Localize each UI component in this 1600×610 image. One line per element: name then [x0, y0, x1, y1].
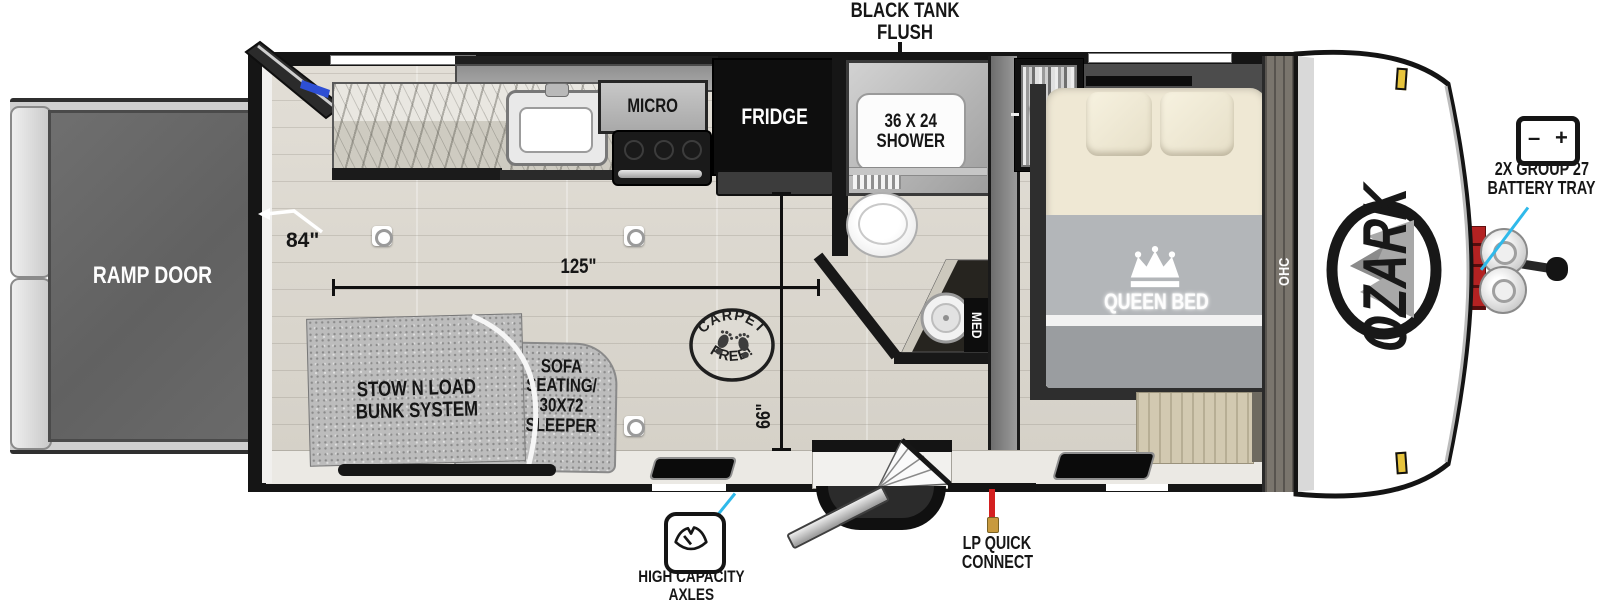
- refrigerator-label: FRIDGE: [742, 106, 809, 129]
- kitchen-base-cabinet-2: [500, 170, 612, 180]
- dim-125-tick-left: [332, 279, 335, 296]
- range-handle: [618, 170, 702, 178]
- queen-bed-label-wrap: QUEEN BED: [1046, 290, 1266, 314]
- lp-label-line1: LP QUICK: [963, 534, 1032, 553]
- tank-collar: [1492, 279, 1516, 303]
- window-bottom-sofa-side: [652, 484, 726, 491]
- lp-quick-connect-fitting: [987, 517, 999, 533]
- lp-quick-connect-callout: LP QUICK CONNECT: [947, 534, 1047, 571]
- ramp-door-label: RAMP DOOR: [92, 264, 211, 289]
- dim-125-text: 125": [560, 256, 596, 278]
- range-cooktop: [612, 130, 712, 186]
- clearance-light: [1395, 452, 1408, 475]
- anchor-ring: [375, 229, 393, 247]
- axle-scale-icon: [664, 512, 726, 574]
- carpet-free-stamp: CARPET FREE!: [686, 306, 778, 384]
- bed-platform-left-edge: [1030, 84, 1046, 400]
- axles-label-line2: AXLES: [668, 586, 713, 604]
- battery-minus-terminal: –: [1528, 127, 1540, 150]
- battery-tray-callout: 2X GROUP 27 BATTERY TRAY: [1478, 160, 1600, 197]
- kitchen-overhead-cabinet-shadowbar: [455, 56, 718, 64]
- shower: 36 X 24 SHOWER: [846, 60, 996, 196]
- dim-125-label: 125": [546, 256, 610, 278]
- bed-blanket-stripe: [1046, 315, 1266, 326]
- shower-pan: 36 X 24 SHOWER: [856, 93, 966, 171]
- dim-66-text: 66": [754, 403, 775, 428]
- dim-84-label: 84": [286, 230, 319, 252]
- shower-label-line2: SHOWER: [877, 132, 945, 152]
- pillow: [1160, 92, 1234, 156]
- kitchen-sink: [506, 90, 608, 166]
- battery-label-line1: 2X GROUP 27: [1495, 160, 1589, 179]
- clearance-light: [1395, 68, 1408, 91]
- dim-125-tick-right: [817, 279, 820, 296]
- ramp-door-fold-panel-lower: [10, 278, 52, 450]
- pillow: [1086, 92, 1152, 156]
- queen-bed-label: QUEEN BED: [1104, 291, 1209, 314]
- brand-logo-text: OZARK: [1350, 180, 1419, 354]
- shower-door-slats: [853, 175, 901, 189]
- bunk-floor-rail: [338, 464, 556, 476]
- anchor-ring: [627, 419, 645, 437]
- black-tank-flush-line2: FLUSH: [877, 22, 933, 44]
- battery-plus-terminal: +: [1555, 127, 1568, 150]
- bed-blanket-foot: [1046, 326, 1266, 388]
- rv-floorplan: BLACK TANK FLUSH RAMP DOOR MIC: [0, 0, 1600, 610]
- tongue-jack-knob: [1546, 257, 1568, 281]
- bed-soffit-bar: [1086, 76, 1192, 86]
- faucet-icon: [545, 83, 569, 97]
- window-top-bedroom: [1088, 53, 1232, 63]
- med-cabinet-label: MED: [970, 312, 985, 338]
- axles-callout: HIGH CAPACITY AXLES: [631, 568, 751, 603]
- microwave: MICRO: [598, 80, 708, 134]
- lp-quick-connect-line: [989, 489, 995, 519]
- refrigerator: FRIDGE: [712, 58, 838, 176]
- burner-icon: [654, 140, 674, 160]
- battery-label-line2: BATTERY TRAY: [1488, 179, 1596, 198]
- propane-tank: [1479, 266, 1527, 314]
- burner-icon: [624, 140, 644, 160]
- black-tank-flush-callout: BLACK TANK FLUSH: [825, 0, 985, 44]
- kitchen-sink-basin: [519, 107, 593, 153]
- kitchen-base-cabinet: [332, 168, 502, 180]
- bunk-curve: [450, 312, 570, 472]
- axles-label-line1: HIGH CAPACITY: [638, 568, 744, 586]
- crown-icon: [1122, 246, 1188, 292]
- dim-66-tick-bottom: [772, 448, 791, 451]
- med-cabinet: MED: [964, 298, 990, 352]
- anchor-ring: [627, 229, 645, 247]
- sofa-side-bottom-window: [649, 457, 738, 480]
- brand-logo: OZARK: [1318, 148, 1450, 388]
- floor-anchor: [624, 416, 644, 436]
- lp-label-line2: CONNECT: [961, 553, 1032, 572]
- rear-wall-inner-edge: [262, 66, 272, 483]
- window-bottom-bedroom-side: [1106, 484, 1168, 491]
- microwave-label: MICRO: [628, 97, 679, 117]
- burner-icon: [682, 140, 702, 160]
- ramp-door-fold-panel-upper: [10, 106, 52, 278]
- bedroom-bottom-window: [1052, 452, 1156, 480]
- dim-66-line: [780, 194, 783, 450]
- ramp-door: RAMP DOOR: [10, 96, 256, 456]
- dim-66-tick-top: [772, 192, 791, 195]
- shower-label-line1: 36 X 24: [885, 112, 937, 132]
- toilet-bowl: [858, 203, 908, 245]
- black-tank-flush-line1: BLACK TANK: [851, 0, 960, 22]
- queen-bed: QUEEN BED: [1046, 88, 1266, 388]
- dim-66-label: 66": [752, 394, 776, 438]
- floor-anchor: [372, 226, 392, 246]
- ramp-door-panel: RAMP DOOR: [48, 110, 256, 442]
- dim-125-line: [334, 286, 820, 289]
- floor-anchor: [624, 226, 644, 246]
- wardrobe-dash-left: [1011, 113, 1019, 116]
